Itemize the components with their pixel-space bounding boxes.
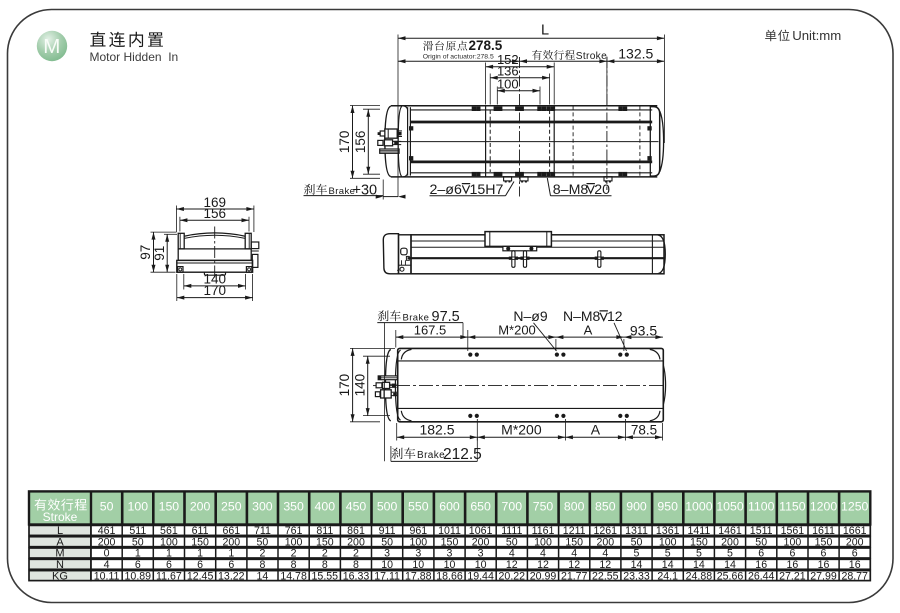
svg-text:Brake: Brake (403, 312, 430, 323)
svg-text:132.5: 132.5 (618, 45, 653, 61)
svg-text:16: 16 (849, 559, 861, 571)
svg-text:13.22: 13.22 (218, 570, 245, 582)
svg-text:19.44: 19.44 (467, 570, 494, 582)
svg-text:3: 3 (447, 548, 453, 560)
svg-text:12: 12 (537, 559, 549, 571)
svg-text:50: 50 (506, 536, 518, 548)
svg-text:400: 400 (315, 500, 336, 514)
svg-text:14.78: 14.78 (280, 570, 307, 582)
svg-text:14: 14 (693, 559, 705, 571)
svg-text:4: 4 (104, 559, 110, 571)
svg-text:100: 100 (285, 536, 303, 548)
svg-text:10: 10 (381, 559, 393, 571)
svg-text:150: 150 (565, 536, 583, 548)
svg-text:170: 170 (204, 283, 227, 298)
svg-text:711: 711 (254, 525, 271, 537)
svg-text:100: 100 (160, 536, 178, 548)
svg-text:861: 861 (347, 525, 365, 537)
svg-text:661: 661 (222, 525, 240, 537)
svg-text:650: 650 (470, 500, 491, 514)
svg-text:50: 50 (100, 500, 114, 514)
svg-text:24.1: 24.1 (657, 570, 678, 582)
svg-text:12.45: 12.45 (187, 570, 214, 582)
svg-text:4: 4 (509, 548, 515, 560)
svg-text:761: 761 (285, 525, 303, 537)
svg-text:1100: 1100 (748, 500, 775, 514)
svg-text:14: 14 (724, 559, 736, 571)
svg-text:1261: 1261 (594, 525, 618, 537)
svg-text:1200: 1200 (810, 500, 838, 514)
svg-text:150: 150 (191, 536, 209, 548)
svg-text:12: 12 (599, 559, 611, 571)
svg-text:27.21: 27.21 (779, 570, 806, 582)
svg-text:A: A (591, 421, 601, 437)
svg-text:Origin of actuator:278.5: Origin of actuator:278.5 (423, 53, 494, 60)
svg-text:4: 4 (602, 548, 608, 560)
svg-text:961: 961 (409, 525, 427, 537)
svg-text:1: 1 (135, 548, 141, 560)
svg-text:700: 700 (502, 500, 523, 514)
svg-text:L: L (57, 525, 63, 537)
svg-text:6: 6 (758, 548, 764, 560)
svg-text:3: 3 (478, 548, 484, 560)
svg-text:50: 50 (381, 536, 393, 548)
svg-text:1050: 1050 (716, 500, 744, 514)
svg-text:A: A (584, 323, 593, 338)
svg-text:461: 461 (98, 525, 116, 537)
svg-text:Brake: Brake (417, 450, 445, 461)
svg-text:600: 600 (439, 500, 460, 514)
svg-text:16.33: 16.33 (343, 570, 370, 582)
svg-text:300: 300 (252, 500, 273, 514)
svg-text:50: 50 (755, 536, 767, 548)
svg-text:N–M8: N–M8 (563, 308, 601, 324)
svg-text:KG: KG (52, 570, 68, 582)
svg-text:10.89: 10.89 (125, 570, 152, 582)
svg-text:Unit:mm: Unit:mm (792, 28, 841, 43)
svg-text:156: 156 (353, 131, 368, 154)
svg-text:1250: 1250 (841, 500, 869, 514)
svg-text:100: 100 (409, 536, 427, 548)
svg-text:1461: 1461 (718, 525, 742, 537)
svg-text:1: 1 (197, 548, 203, 560)
svg-text:900: 900 (626, 500, 647, 514)
svg-text:200: 200 (472, 536, 490, 548)
svg-text:1361: 1361 (656, 525, 680, 537)
svg-text:1: 1 (228, 548, 234, 560)
svg-text:16: 16 (818, 559, 830, 571)
svg-text:561: 561 (160, 525, 178, 537)
svg-text:1661: 1661 (843, 525, 867, 537)
svg-text:1061: 1061 (469, 525, 493, 537)
svg-text:150: 150 (441, 536, 459, 548)
svg-text:8: 8 (322, 559, 328, 571)
svg-text:511: 511 (129, 525, 146, 537)
svg-text:93.5: 93.5 (630, 322, 657, 338)
svg-text:6: 6 (821, 548, 827, 560)
svg-text:5: 5 (665, 548, 671, 560)
svg-text:156: 156 (204, 206, 227, 221)
svg-text:950: 950 (657, 500, 678, 514)
svg-text:1111: 1111 (501, 525, 522, 537)
svg-text:150: 150 (316, 536, 334, 548)
svg-text:1: 1 (166, 548, 172, 560)
svg-text:10.11: 10.11 (94, 570, 120, 582)
svg-text:3: 3 (415, 548, 421, 560)
svg-text:100: 100 (784, 536, 802, 548)
svg-text:12: 12 (506, 559, 518, 571)
svg-text:8: 8 (353, 559, 359, 571)
svg-text:N: N (56, 559, 64, 571)
svg-text:6: 6 (197, 559, 203, 571)
svg-text:27.99: 27.99 (810, 570, 837, 582)
svg-text:6: 6 (166, 559, 172, 571)
svg-text:A: A (56, 536, 64, 548)
svg-text:850: 850 (595, 500, 616, 514)
svg-text:1611: 1611 (812, 525, 835, 537)
svg-text:2: 2 (291, 548, 297, 560)
svg-text:3: 3 (384, 548, 390, 560)
svg-text:Brake: Brake (329, 186, 356, 197)
svg-text:21.77: 21.77 (561, 570, 588, 582)
svg-text:200: 200 (347, 536, 365, 548)
svg-text:22.55: 22.55 (592, 570, 619, 582)
svg-text:800: 800 (564, 500, 585, 514)
svg-text:140: 140 (352, 374, 367, 397)
svg-text:50: 50 (132, 536, 144, 548)
svg-text:200: 200 (222, 536, 240, 548)
svg-text:5: 5 (696, 548, 702, 560)
svg-text:5: 5 (727, 548, 733, 560)
svg-text:450: 450 (346, 500, 367, 514)
svg-text:250: 250 (221, 500, 242, 514)
svg-text:911: 911 (379, 525, 396, 537)
svg-text:811: 811 (316, 525, 333, 537)
svg-text:2: 2 (322, 548, 328, 560)
svg-text:14: 14 (631, 559, 643, 571)
svg-text:50: 50 (631, 536, 643, 548)
svg-text:23.33: 23.33 (623, 570, 650, 582)
svg-text:10: 10 (412, 559, 424, 571)
svg-text:26.44: 26.44 (748, 570, 775, 582)
svg-text:200: 200 (721, 536, 739, 548)
svg-text:500: 500 (377, 500, 398, 514)
svg-text:150: 150 (815, 536, 833, 548)
svg-text:6: 6 (789, 548, 795, 560)
svg-text:17.88: 17.88 (405, 570, 432, 582)
svg-text:Stroke: Stroke (576, 51, 607, 62)
svg-text:2: 2 (353, 548, 359, 560)
svg-text:1161: 1161 (532, 525, 555, 537)
svg-text:278.5: 278.5 (469, 38, 503, 53)
svg-text:16: 16 (755, 559, 767, 571)
svg-text:20.22: 20.22 (499, 570, 526, 582)
svg-text:167.5: 167.5 (414, 323, 447, 338)
svg-text:550: 550 (408, 500, 429, 514)
svg-text:15.55: 15.55 (312, 570, 339, 582)
svg-text:1000: 1000 (685, 500, 713, 514)
svg-text:6: 6 (135, 559, 141, 571)
svg-text:78.5: 78.5 (631, 422, 657, 437)
svg-text:16: 16 (787, 559, 799, 571)
svg-text:6: 6 (228, 559, 234, 571)
svg-text:100: 100 (534, 536, 552, 548)
svg-text:14: 14 (662, 559, 674, 571)
svg-text:M: M (55, 548, 64, 560)
svg-text:14: 14 (257, 570, 269, 582)
svg-text:1511: 1511 (750, 525, 773, 537)
svg-text:150: 150 (690, 536, 708, 548)
svg-text:N–ø9: N–ø9 (513, 308, 547, 324)
svg-text:4: 4 (571, 548, 577, 560)
svg-text:1011: 1011 (438, 525, 461, 537)
svg-text:182.5: 182.5 (419, 421, 454, 437)
svg-text:2: 2 (259, 548, 265, 560)
svg-text:Stroke: Stroke (43, 510, 78, 524)
svg-text:50: 50 (257, 536, 269, 548)
svg-text:M: M (43, 35, 60, 58)
svg-text:17.11: 17.11 (374, 570, 400, 582)
svg-text:350: 350 (283, 500, 304, 514)
svg-text:100: 100 (128, 500, 149, 514)
svg-text:5: 5 (634, 548, 640, 560)
svg-text:28.77: 28.77 (841, 570, 868, 582)
svg-text:24.88: 24.88 (686, 570, 713, 582)
svg-text:4: 4 (540, 548, 546, 560)
svg-text:1561: 1561 (781, 525, 805, 537)
svg-text:1311: 1311 (625, 525, 648, 537)
svg-text:+30: +30 (353, 182, 378, 198)
svg-text:150: 150 (159, 500, 180, 514)
svg-text:91: 91 (152, 246, 167, 261)
svg-text:200: 200 (846, 536, 864, 548)
svg-text:Motor Hidden In: Motor Hidden In (90, 50, 179, 64)
svg-text:10: 10 (475, 559, 487, 571)
svg-text:0: 0 (104, 548, 110, 560)
svg-text:L: L (541, 23, 549, 39)
svg-text:11.67: 11.67 (156, 570, 182, 582)
svg-text:20.99: 20.99 (530, 570, 557, 582)
svg-text:25.66: 25.66 (717, 570, 744, 582)
svg-text:200: 200 (596, 536, 614, 548)
svg-text:170: 170 (337, 374, 352, 397)
svg-text:212.5: 212.5 (443, 446, 482, 463)
svg-text:18.66: 18.66 (436, 570, 463, 582)
svg-text:1211: 1211 (563, 525, 586, 537)
svg-text:1411: 1411 (688, 525, 711, 537)
svg-text:12: 12 (607, 308, 623, 324)
svg-text:750: 750 (533, 500, 554, 514)
svg-text:170: 170 (337, 131, 352, 154)
svg-text:8: 8 (259, 559, 265, 571)
svg-text:200: 200 (98, 536, 116, 548)
svg-text:100: 100 (497, 76, 519, 91)
svg-text:8: 8 (291, 559, 297, 571)
svg-text:611: 611 (192, 525, 209, 537)
svg-text:100: 100 (659, 536, 677, 548)
svg-text:10: 10 (444, 559, 456, 571)
svg-text:M*200: M*200 (498, 323, 536, 338)
svg-text:12: 12 (568, 559, 580, 571)
svg-text:M*200: M*200 (501, 421, 542, 437)
svg-text:6: 6 (852, 548, 858, 560)
svg-text:1150: 1150 (779, 500, 806, 514)
svg-text:200: 200 (190, 500, 211, 514)
